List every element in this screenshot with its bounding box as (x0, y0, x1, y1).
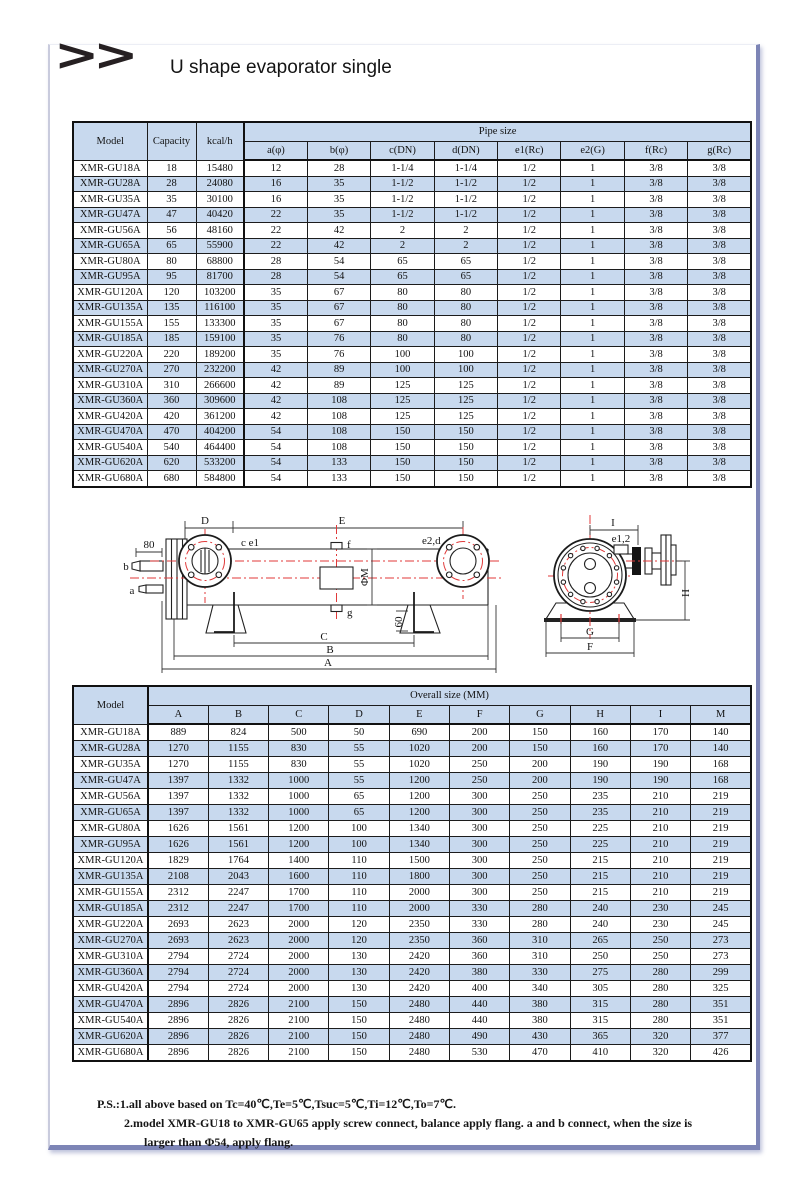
nozzle-label-a: a (130, 585, 135, 597)
table-cell: 533200 (196, 455, 244, 471)
table-cell: XMR-GU18A (73, 160, 147, 176)
table-cell: 140 (691, 724, 751, 741)
table-cell: 2000 (389, 901, 449, 917)
table-cell: 133 (307, 471, 370, 487)
table-cell: 65 (371, 269, 434, 285)
table-row: XMR-GU135A210820431600110180030025021521… (73, 869, 751, 885)
table-cell: 360 (449, 933, 509, 949)
table-cell: 351 (691, 1013, 751, 1029)
table-cell: 2826 (208, 1045, 268, 1062)
table-row: XMR-GU47A474042022351-1/21-1/21/213/83/8 (73, 207, 751, 223)
table-cell: 170 (630, 724, 690, 741)
table-cell: 2100 (269, 1029, 329, 1045)
table-cell: 380 (510, 997, 570, 1013)
table-cell: 116100 (196, 300, 244, 316)
table-cell: 330 (449, 917, 509, 933)
table-cell: 3/8 (624, 455, 687, 471)
table-cell: XMR-GU28A (73, 741, 148, 757)
table-cell: 219 (691, 885, 751, 901)
table-cell: 250 (630, 933, 690, 949)
table-cell: 133 (307, 455, 370, 471)
table-cell: 219 (691, 869, 751, 885)
table-cell: 280 (510, 901, 570, 917)
table-cell: 80 (434, 300, 497, 316)
table-row: XMR-GU95A9581700285465651/213/83/8 (73, 269, 751, 285)
table-cell: 1/2 (498, 347, 561, 363)
table-row: XMR-GU310A279427242000130242036031025025… (73, 949, 751, 965)
table-cell: 3/8 (624, 223, 687, 239)
table-cell: 1 (561, 424, 624, 440)
table-cell: 300 (449, 869, 509, 885)
table-cell: 160 (570, 741, 630, 757)
table-cell: 2 (434, 223, 497, 239)
table-cell: 54 (244, 471, 307, 487)
column-header-model: Model (73, 122, 147, 160)
table-cell: 3/8 (624, 378, 687, 394)
table-cell: 240 (570, 917, 630, 933)
sub-column-header: g(Rc) (688, 141, 751, 160)
footnotes: P.S.:1.all above based on Tc=40℃,Te=5℃,T… (97, 1095, 692, 1152)
table-cell: XMR-GU540A (73, 1013, 148, 1029)
table-cell: 80 (434, 285, 497, 301)
table-cell: 380 (449, 965, 509, 981)
table-cell: 584800 (196, 471, 244, 487)
sub-column-header: B (208, 705, 268, 724)
table-cell: 42 (244, 362, 307, 378)
table-cell: 2724 (208, 949, 268, 965)
table-cell: 250 (449, 773, 509, 789)
table-cell: 3/8 (624, 393, 687, 409)
table-cell: 150 (329, 1029, 389, 1045)
table-cell: XMR-GU360A (73, 393, 147, 409)
table-cell: 150 (510, 741, 570, 757)
table-cell: 240 (570, 901, 630, 917)
table-cell: 2623 (208, 933, 268, 949)
table-cell: XMR-GU620A (73, 1029, 148, 1045)
table-cell: XMR-GU47A (73, 207, 147, 223)
table-cell: 2480 (389, 1013, 449, 1029)
dim-label-b: B (326, 644, 333, 656)
table-cell: 1 (561, 471, 624, 487)
table-cell: 1-1/4 (434, 160, 497, 176)
table-cell: 824 (208, 724, 268, 741)
table-cell: 2826 (208, 997, 268, 1013)
table-cell: 120 (329, 933, 389, 949)
table-cell: 680 (147, 471, 196, 487)
table-cell: 210 (630, 853, 690, 869)
table-cell: 1397 (148, 789, 208, 805)
sub-column-header: G (510, 705, 570, 724)
table-cell: 1397 (148, 805, 208, 821)
table-cell: XMR-GU35A (73, 192, 147, 208)
table-cell: 310 (510, 949, 570, 965)
table-cell: 1829 (148, 853, 208, 869)
table-cell: 1700 (269, 901, 329, 917)
dim-label-c: C (320, 631, 327, 643)
table-cell: 80 (434, 316, 497, 332)
table-cell: 1600 (269, 869, 329, 885)
table-cell: XMR-GU18A (73, 724, 148, 741)
page-title: U shape evaporator single (170, 57, 392, 79)
table-cell: 2247 (208, 901, 268, 917)
table-cell: 1 (561, 440, 624, 456)
table-cell: 65 (434, 269, 497, 285)
table-cell: 2420 (389, 949, 449, 965)
port-label-e2-d: e2,d (422, 535, 441, 547)
table-cell: 250 (510, 853, 570, 869)
table-row: XMR-GU470A470404200541081501501/213/83/8 (73, 424, 751, 440)
table-cell: 150 (371, 440, 434, 456)
table-cell: XMR-GU620A (73, 455, 147, 471)
table-cell: 1/2 (498, 362, 561, 378)
table-cell: 3/8 (624, 440, 687, 456)
table-cell: 125 (434, 378, 497, 394)
table-cell: 1 (561, 254, 624, 270)
table-cell: 1-1/2 (434, 207, 497, 223)
table-cell: XMR-GU540A (73, 440, 147, 456)
table-cell: 67 (307, 285, 370, 301)
table-cell: 28 (147, 176, 196, 192)
table-cell: 300 (449, 885, 509, 901)
table-cell: 150 (329, 997, 389, 1013)
table-cell: 103200 (196, 285, 244, 301)
table-cell: 150 (371, 424, 434, 440)
footnote-line-2: 2.model XMR-GU18 to XMR-GU65 apply screw… (97, 1114, 692, 1133)
table-cell: 360 (449, 949, 509, 965)
table-cell: 280 (630, 997, 690, 1013)
table-cell: 1/2 (498, 424, 561, 440)
table-cell: 280 (630, 981, 690, 997)
table-cell: 42 (244, 393, 307, 409)
table-cell: XMR-GU95A (73, 837, 148, 853)
table-cell: 200 (449, 741, 509, 757)
table-cell: 3/8 (688, 269, 751, 285)
table-cell: 215 (570, 853, 630, 869)
table-cell: 1/2 (498, 300, 561, 316)
table-cell: 67 (307, 300, 370, 316)
sub-column-header: C (269, 705, 329, 724)
table-cell: 1 (561, 160, 624, 176)
table-cell: 130 (329, 949, 389, 965)
table-cell: 150 (434, 471, 497, 487)
table-cell: 150 (329, 1013, 389, 1029)
table-cell: XMR-GU270A (73, 933, 148, 949)
table-cell: 159100 (196, 331, 244, 347)
table-cell: 404200 (196, 424, 244, 440)
table-cell: 1-1/2 (434, 192, 497, 208)
overall-size-table-body: XMR-GU18A88982450050690200150160170140XM… (73, 724, 751, 1061)
table-cell: 35 (307, 192, 370, 208)
table-cell: 1626 (148, 837, 208, 853)
table-cell: 1155 (208, 741, 268, 757)
dim-label-e: E (339, 515, 346, 527)
table-cell: 185 (147, 331, 196, 347)
table-cell: 351 (691, 997, 751, 1013)
table-cell: XMR-GU185A (73, 901, 148, 917)
overall-size-subheader-row: ABCDEFGHIM (73, 705, 751, 724)
table-cell: 54 (244, 455, 307, 471)
column-header-capacity: Capacity (147, 122, 196, 160)
table-cell: 42 (244, 378, 307, 394)
table-cell: 2350 (389, 917, 449, 933)
table-cell: 16 (244, 176, 307, 192)
dim-label-phim: ΦM (359, 568, 371, 586)
pipe-size-table: Model Capacity kcal/h Pipe size a(φ)b(φ)… (72, 121, 752, 488)
dim-label-a: A (324, 657, 332, 669)
page-frame: >> U shape evaporator single Model Capac… (48, 44, 760, 1150)
table-row: XMR-GU28A282408016351-1/21-1/21/213/83/8 (73, 176, 751, 192)
table-cell: 440 (449, 1013, 509, 1029)
table-cell: 1332 (208, 789, 268, 805)
table-cell: XMR-GU120A (73, 285, 147, 301)
table-cell: 220 (147, 347, 196, 363)
nozzle-label-f: f (347, 539, 351, 551)
table-cell: 35 (307, 176, 370, 192)
table-cell: 3/8 (688, 176, 751, 192)
table-cell: 2100 (269, 997, 329, 1013)
table-cell: 3/8 (624, 238, 687, 254)
table-cell: 3/8 (688, 192, 751, 208)
sub-column-header: F (449, 705, 509, 724)
table-cell: 100 (329, 821, 389, 837)
table-cell: 54 (244, 440, 307, 456)
table-cell: 150 (434, 440, 497, 456)
table-cell: 2312 (148, 885, 208, 901)
table-cell: XMR-GU470A (73, 424, 147, 440)
table-cell: 1/2 (498, 269, 561, 285)
table-cell: 280 (510, 917, 570, 933)
table-cell: 273 (691, 933, 751, 949)
table-cell: 2312 (148, 901, 208, 917)
table-cell: 1/2 (498, 331, 561, 347)
table-cell: 1020 (389, 757, 449, 773)
sub-column-header: b(φ) (307, 141, 370, 160)
table-cell: 28 (244, 254, 307, 270)
table-cell: 1 (561, 192, 624, 208)
table-cell: 1700 (269, 885, 329, 901)
dim-label-60: 60 (393, 616, 405, 628)
nozzle-label-g: g (347, 607, 353, 619)
sub-column-header: H (570, 705, 630, 724)
table-cell: 150 (434, 455, 497, 471)
table-cell: 1/2 (498, 207, 561, 223)
table-cell: 2100 (269, 1045, 329, 1062)
table-cell: XMR-GU95A (73, 269, 147, 285)
table-cell: 420 (147, 409, 196, 425)
dim-label-f: F (587, 641, 593, 653)
table-cell: 3/8 (624, 316, 687, 332)
table-cell: 1/2 (498, 160, 561, 176)
table-cell: 219 (691, 805, 751, 821)
table-cell: XMR-GU155A (73, 316, 147, 332)
table-cell: 125 (371, 378, 434, 394)
table-cell: 1400 (269, 853, 329, 869)
table-cell: 250 (510, 821, 570, 837)
table-cell: 1/2 (498, 176, 561, 192)
nozzle-label-b: b (123, 561, 129, 573)
table-row: XMR-GU620A620533200541331501501/213/83/8 (73, 455, 751, 471)
table-cell: 325 (691, 981, 751, 997)
table-cell: 210 (630, 805, 690, 821)
table-cell: 310 (510, 933, 570, 949)
table-cell: 125 (434, 409, 497, 425)
table-cell: 76 (307, 347, 370, 363)
table-row: XMR-GU310A31026660042891251251/213/83/8 (73, 378, 751, 394)
table-cell: XMR-GU80A (73, 821, 148, 837)
table-row: XMR-GU270A269326232000120235036031026525… (73, 933, 751, 949)
table-cell: 280 (630, 1013, 690, 1029)
table-cell: 48160 (196, 223, 244, 239)
table-cell: 250 (630, 949, 690, 965)
catalog-page: >> U shape evaporator single Model Capac… (0, 0, 800, 1198)
table-cell: 150 (329, 1045, 389, 1062)
table-cell: 2794 (148, 981, 208, 997)
table-cell: 190 (630, 773, 690, 789)
table-cell: 16 (244, 192, 307, 208)
table-cell: 100 (371, 362, 434, 378)
table-cell: 2826 (208, 1013, 268, 1029)
table-cell: 3/8 (688, 207, 751, 223)
table-cell: 110 (329, 901, 389, 917)
table-row: XMR-GU220A269326232000120235033028024023… (73, 917, 751, 933)
table-cell: 3/8 (688, 471, 751, 487)
table-cell: 210 (630, 869, 690, 885)
table-cell: XMR-GU360A (73, 965, 148, 981)
table-cell: 1000 (269, 773, 329, 789)
table-cell: 35 (147, 192, 196, 208)
table-cell: 2896 (148, 1045, 208, 1062)
table-cell: 1/2 (498, 238, 561, 254)
table-cell: 1-1/4 (371, 160, 434, 176)
table-cell: 300 (449, 805, 509, 821)
table-cell: 440 (449, 997, 509, 1013)
table-cell: 1 (561, 176, 624, 192)
table-cell: 2623 (208, 917, 268, 933)
table-row: XMR-GU35A353010016351-1/21-1/21/213/83/8 (73, 192, 751, 208)
table-row: XMR-GU540A289628262100150248044038031528… (73, 1013, 751, 1029)
table-cell: 42 (307, 238, 370, 254)
table-cell: 250 (449, 757, 509, 773)
table-cell: 1200 (389, 789, 449, 805)
chevron-brand-icon: >> (54, 29, 133, 81)
table-cell: 1/2 (498, 440, 561, 456)
table-cell: 1561 (208, 837, 268, 853)
table-cell: 1270 (148, 757, 208, 773)
table-cell: 1/2 (498, 223, 561, 239)
table-cell: 3/8 (624, 409, 687, 425)
table-cell: 2480 (389, 1045, 449, 1062)
table-cell: 1 (561, 347, 624, 363)
table-cell: 1332 (208, 773, 268, 789)
sub-column-header: M (691, 705, 751, 724)
table-row: XMR-GU47A1397133210005512002502001901901… (73, 773, 751, 789)
table-row: XMR-GU56A1397133210006512003002502352102… (73, 789, 751, 805)
table-cell: 1 (561, 393, 624, 409)
dim-label-i: I (611, 517, 615, 529)
table-cell: 300 (449, 837, 509, 853)
table-row: XMR-GU65A1397133210006512003002502352102… (73, 805, 751, 821)
table-cell: XMR-GU220A (73, 347, 147, 363)
table-cell: 1/2 (498, 455, 561, 471)
table-cell: 55900 (196, 238, 244, 254)
table-cell: 2000 (269, 965, 329, 981)
table-cell: 89 (307, 362, 370, 378)
footnote-line-1: P.S.:1.all above based on Tc=40℃,Te=5℃,T… (97, 1095, 692, 1114)
table-cell: 30100 (196, 192, 244, 208)
table-cell: 2826 (208, 1029, 268, 1045)
table-cell: 1 (561, 238, 624, 254)
table-cell: 1500 (389, 853, 449, 869)
table-cell: 250 (510, 837, 570, 853)
group-header-overall-size: Overall size (MM) (148, 686, 751, 705)
table-cell: 360 (147, 393, 196, 409)
table-cell: 1-1/2 (371, 192, 434, 208)
table-cell: XMR-GU80A (73, 254, 147, 270)
table-cell: XMR-GU120A (73, 853, 148, 869)
table-cell: 22 (244, 207, 307, 223)
table-cell: 889 (148, 724, 208, 741)
table-row: XMR-GU80A1626156112001001340300250225210… (73, 821, 751, 837)
table-cell: 125 (434, 393, 497, 409)
table-cell: 2 (371, 238, 434, 254)
table-cell: 300 (449, 789, 509, 805)
table-cell: 1200 (389, 773, 449, 789)
table-cell: 110 (329, 853, 389, 869)
dim-label-g: G (586, 626, 594, 638)
table-cell: 225 (570, 837, 630, 853)
table-cell: 1/2 (498, 471, 561, 487)
table-cell: 54 (307, 254, 370, 270)
port-label-c-e1: c e1 (241, 537, 259, 549)
table-cell: 3/8 (624, 207, 687, 223)
table-cell: 3/8 (624, 160, 687, 176)
table-cell: 68800 (196, 254, 244, 270)
table-cell: 310 (147, 378, 196, 394)
table-cell: 80 (371, 300, 434, 316)
table-cell: 219 (691, 853, 751, 869)
table-cell: 65 (329, 789, 389, 805)
table-cell: 3/8 (688, 316, 751, 332)
table-cell: 110 (329, 869, 389, 885)
table-cell: 54 (307, 269, 370, 285)
table-cell: 2896 (148, 997, 208, 1013)
table-cell: 3/8 (688, 362, 751, 378)
table-cell: 125 (371, 393, 434, 409)
table-cell: 2693 (148, 933, 208, 949)
table-cell: 230 (630, 917, 690, 933)
table-cell: 320 (630, 1045, 690, 1062)
table-cell: 22 (244, 238, 307, 254)
table-cell: 35 (244, 285, 307, 301)
table-cell: 1 (561, 378, 624, 394)
table-cell: 1155 (208, 757, 268, 773)
table-cell: 28 (244, 269, 307, 285)
table-cell: 1 (561, 207, 624, 223)
table-row: XMR-GU680A289628262100150248053047041032… (73, 1045, 751, 1062)
table-cell: 120 (147, 285, 196, 301)
table-cell: 2 (434, 238, 497, 254)
table-cell: 340 (510, 981, 570, 997)
evaporator-drawing-svg: D E b a (110, 501, 760, 683)
table-cell: XMR-GU56A (73, 223, 147, 239)
table-cell: 830 (269, 757, 329, 773)
table-cell: 65 (147, 238, 196, 254)
table-cell: 210 (630, 789, 690, 805)
table-cell: 80 (434, 331, 497, 347)
table-cell: 35 (244, 300, 307, 316)
table-cell: 2794 (148, 965, 208, 981)
table-cell: 24080 (196, 176, 244, 192)
